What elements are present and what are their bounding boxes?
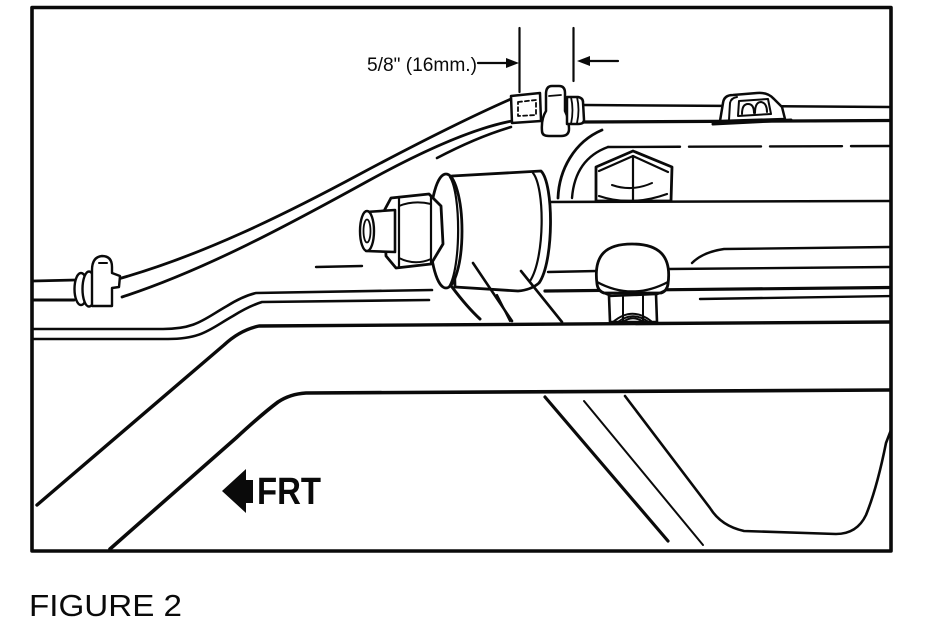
tube-retainer-clip xyxy=(713,93,791,124)
bracket-arm xyxy=(452,287,480,319)
technical-figure-page: 5/8" (16mm.) FRT FIGURE 2 xyxy=(0,0,944,624)
figure-2-diagram: 5/8" (16mm.) FRT FIGURE 2 xyxy=(0,0,944,624)
upper-hex-bolt xyxy=(596,151,672,201)
dimension-arrow-right-icon xyxy=(506,58,519,68)
lower-dome-bolt xyxy=(596,244,668,322)
lower-frame-member xyxy=(110,390,891,549)
frame-rails xyxy=(33,105,891,505)
hose-fitting-clamp xyxy=(511,86,584,136)
dimension-callout: 5/8" (16mm.) xyxy=(367,28,618,92)
frt-arrow-icon xyxy=(222,469,253,513)
frt-direction-indicator: FRT xyxy=(222,469,321,513)
figure-caption: FIGURE 2 xyxy=(29,588,182,623)
fitting-clamp-band xyxy=(542,86,569,136)
dimension-label: 5/8" (16mm.) xyxy=(367,55,477,76)
frt-label: FRT xyxy=(257,471,321,513)
